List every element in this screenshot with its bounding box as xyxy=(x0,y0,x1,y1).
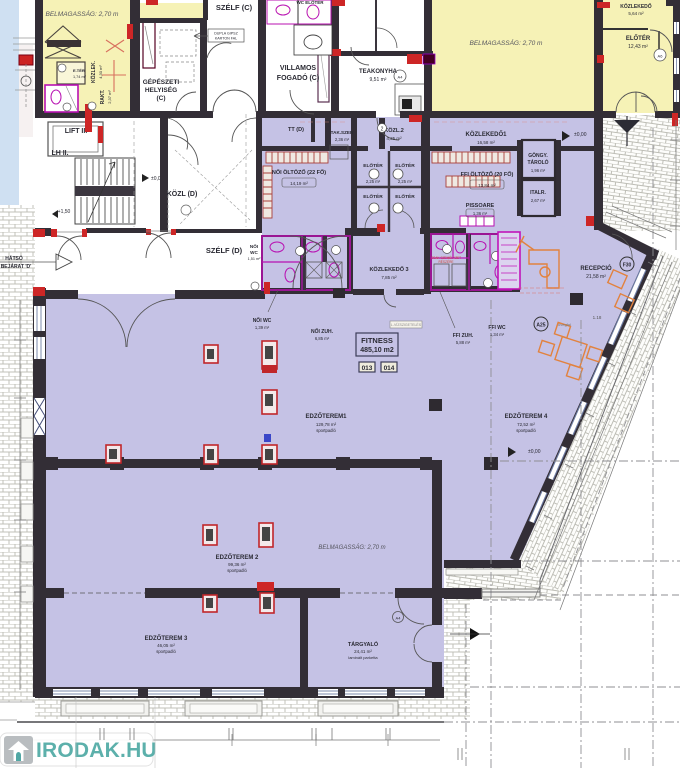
svg-text:(C): (C) xyxy=(156,95,165,102)
svg-text:TÁROLÓ: TÁROLÓ xyxy=(527,158,548,166)
svg-text:L-VÍZSZIGETELÉS: L-VÍZSZIGETELÉS xyxy=(391,322,422,327)
svg-text:laminált parketta: laminált parketta xyxy=(348,655,378,660)
svg-text:BELMAGASSÁG: 2,70 m: BELMAGASSÁG: 2,70 m xyxy=(46,9,120,18)
svg-text:7,85 m²: 7,85 m² xyxy=(381,275,397,280)
svg-text:üvegfal: üvegfal xyxy=(558,322,571,327)
svg-text:RECEPCIÓ: RECEPCIÓ xyxy=(580,264,612,272)
svg-text:DUPLA GIPSZ: DUPLA GIPSZ xyxy=(214,32,238,36)
svg-text:NŐI WC: NŐI WC xyxy=(253,317,272,324)
svg-text:1,96 m²: 1,96 m² xyxy=(531,168,546,173)
svg-text:KARTON FAL: KARTON FAL xyxy=(215,37,237,41)
svg-text:NŐI ÖLTÖZŐ (22 FŐ): NŐI ÖLTÖZŐ (22 FŐ) xyxy=(272,169,326,176)
svg-text:E.TÉR: E.TÉR xyxy=(73,68,85,73)
svg-text:4,35 m²: 4,35 m² xyxy=(386,136,402,141)
svg-text:EDZŐTEREM 3: EDZŐTEREM 3 xyxy=(145,635,188,642)
svg-text:6,85 m²: 6,85 m² xyxy=(315,336,330,341)
svg-text:sportpadló: sportpadló xyxy=(156,649,176,654)
svg-text:A25: A25 xyxy=(536,323,545,329)
svg-text:KÖZL (D): KÖZL (D) xyxy=(167,189,198,198)
svg-text:RÉSZÉRE: RÉSZÉRE xyxy=(438,259,453,264)
svg-text:HELYISÉG: HELYISÉG xyxy=(145,85,177,94)
svg-text:013: 013 xyxy=(362,365,373,372)
svg-text:TAK.SZER: TAK.SZER xyxy=(331,130,354,135)
svg-text:SZÉLF (D): SZÉLF (D) xyxy=(206,246,243,255)
svg-text:2,36 m²: 2,36 m² xyxy=(335,137,350,142)
svg-text:±0,00: ±0,00 xyxy=(574,132,587,138)
svg-text:sportpadló: sportpadló xyxy=(316,428,336,433)
svg-text:FITNESS: FITNESS xyxy=(361,336,393,345)
svg-text:2: 2 xyxy=(381,127,384,133)
svg-text:KÖZLEK.: KÖZLEK. xyxy=(90,60,97,83)
svg-text:A4: A4 xyxy=(398,75,404,80)
svg-text:+1,50: +1,50 xyxy=(58,209,71,215)
svg-text:NŐI: NŐI xyxy=(250,243,258,249)
svg-text:IRODAK.HU: IRODAK.HU xyxy=(36,739,157,762)
svg-text:99,36 m²: 99,36 m² xyxy=(228,562,246,567)
svg-text:2,25 m²: 2,25 m² xyxy=(366,179,381,184)
svg-text:2,37 m²: 2,37 m² xyxy=(107,90,112,104)
svg-text:13,84 m²: 13,84 m² xyxy=(478,183,496,188)
svg-text:KÖZLEKEDŐ: KÖZLEKEDŐ xyxy=(620,3,652,10)
svg-text:RAKT.: RAKT. xyxy=(100,89,106,104)
svg-text:1,51 m²: 1,51 m² xyxy=(248,257,262,261)
svg-text:A4: A4 xyxy=(396,616,402,621)
svg-text:EDZŐTEREM1: EDZŐTEREM1 xyxy=(305,413,347,420)
svg-text:VILLAMOS: VILLAMOS xyxy=(280,65,316,72)
svg-text:1,34 m²: 1,34 m² xyxy=(490,332,505,337)
svg-text:LIFT II.: LIFT II. xyxy=(65,128,88,135)
svg-text:ITALR.: ITALR. xyxy=(530,190,546,196)
svg-text:GÖNGY.: GÖNGY. xyxy=(528,152,548,159)
svg-text:sportpadló: sportpadló xyxy=(227,568,247,573)
svg-text:24,41 m²: 24,41 m² xyxy=(354,649,372,654)
svg-text:4,30 m²: 4,30 m² xyxy=(98,65,103,79)
svg-text:5,88 m²: 5,88 m² xyxy=(456,340,471,345)
svg-text:LH II.: LH II. xyxy=(51,150,68,157)
svg-text:BEJÁRAT 'D': BEJÁRAT 'D' xyxy=(1,263,32,270)
svg-text:TÁRGYALÓ: TÁRGYALÓ xyxy=(348,640,379,648)
svg-text:14,19 m²: 14,19 m² xyxy=(290,181,308,186)
svg-text:72,52 m²: 72,52 m² xyxy=(517,422,535,427)
svg-text:SZÉLF (C): SZÉLF (C) xyxy=(216,3,253,12)
svg-text:WC: WC xyxy=(250,250,258,255)
svg-text:16,58 m²: 16,58 m² xyxy=(477,140,495,145)
svg-text:±0,00: ±0,00 xyxy=(528,449,541,455)
svg-text:TT (D): TT (D) xyxy=(288,127,304,133)
svg-text:NŐI ZUH.: NŐI ZUH. xyxy=(311,328,334,335)
svg-text:9,51 m²: 9,51 m² xyxy=(370,77,387,83)
svg-text:TEAKONYHA: TEAKONYHA xyxy=(359,69,398,75)
svg-text:KÖZLEKEDŐ1: KÖZLEKEDŐ1 xyxy=(465,131,507,138)
svg-text:sportpadló: sportpadló xyxy=(516,428,536,433)
svg-text:ELŐTÉR: ELŐTÉR xyxy=(626,34,651,42)
svg-text:FFI WC: FFI WC xyxy=(488,325,506,331)
svg-text:EDZŐTEREM 2: EDZŐTEREM 2 xyxy=(216,554,259,561)
svg-text:FFI ÖLTÖZŐ (20 FŐ): FFI ÖLTÖZŐ (20 FŐ) xyxy=(461,171,514,178)
svg-text:FFI ZUH.: FFI ZUH. xyxy=(453,333,474,339)
svg-text:FOGADÓ (C): FOGADÓ (C) xyxy=(277,73,319,82)
svg-text:HÁTSÓ: HÁTSÓ xyxy=(5,254,23,262)
svg-text:BELMAGASSÁG: 2,70 m: BELMAGASSÁG: 2,70 m xyxy=(318,544,385,551)
svg-text:21,58 m²: 21,58 m² xyxy=(586,274,606,280)
svg-text:12,43 m²: 12,43 m² xyxy=(628,44,648,50)
svg-text:A6: A6 xyxy=(658,54,664,59)
svg-text:2,67 m²: 2,67 m² xyxy=(531,198,546,203)
svg-text:485,10 m2: 485,10 m2 xyxy=(360,347,394,354)
svg-text:PISSOARE: PISSOARE xyxy=(466,203,495,209)
svg-text:F30: F30 xyxy=(623,263,632,269)
svg-text:014: 014 xyxy=(384,365,395,372)
svg-text:1,74 m²: 1,74 m² xyxy=(73,75,87,79)
svg-text:46,05 m²: 46,05 m² xyxy=(157,643,175,648)
svg-text:1,36 m²: 1,36 m² xyxy=(473,211,488,216)
svg-text:1.18: 1.18 xyxy=(593,315,602,320)
svg-text:EDZŐTEREM 4: EDZŐTEREM 4 xyxy=(505,413,548,420)
svg-text:WC ELŐTÉR: WC ELŐTÉR xyxy=(297,0,325,5)
svg-text:1,39 m²: 1,39 m² xyxy=(255,325,270,330)
svg-text:KÖZLEKEDŐ 3: KÖZLEKEDŐ 3 xyxy=(369,266,408,273)
svg-text:5,64 m²: 5,64 m² xyxy=(628,11,644,16)
svg-text:129,78 m²: 129,78 m² xyxy=(316,422,337,427)
svg-text:2,25 m²: 2,25 m² xyxy=(398,179,413,184)
svg-text:BELMAGASSÁG: 2,70 m: BELMAGASSÁG: 2,70 m xyxy=(470,38,544,47)
svg-text:KÖZL.2: KÖZL.2 xyxy=(384,127,404,134)
svg-text:GÉPÉSZETI: GÉPÉSZETI xyxy=(143,77,180,86)
